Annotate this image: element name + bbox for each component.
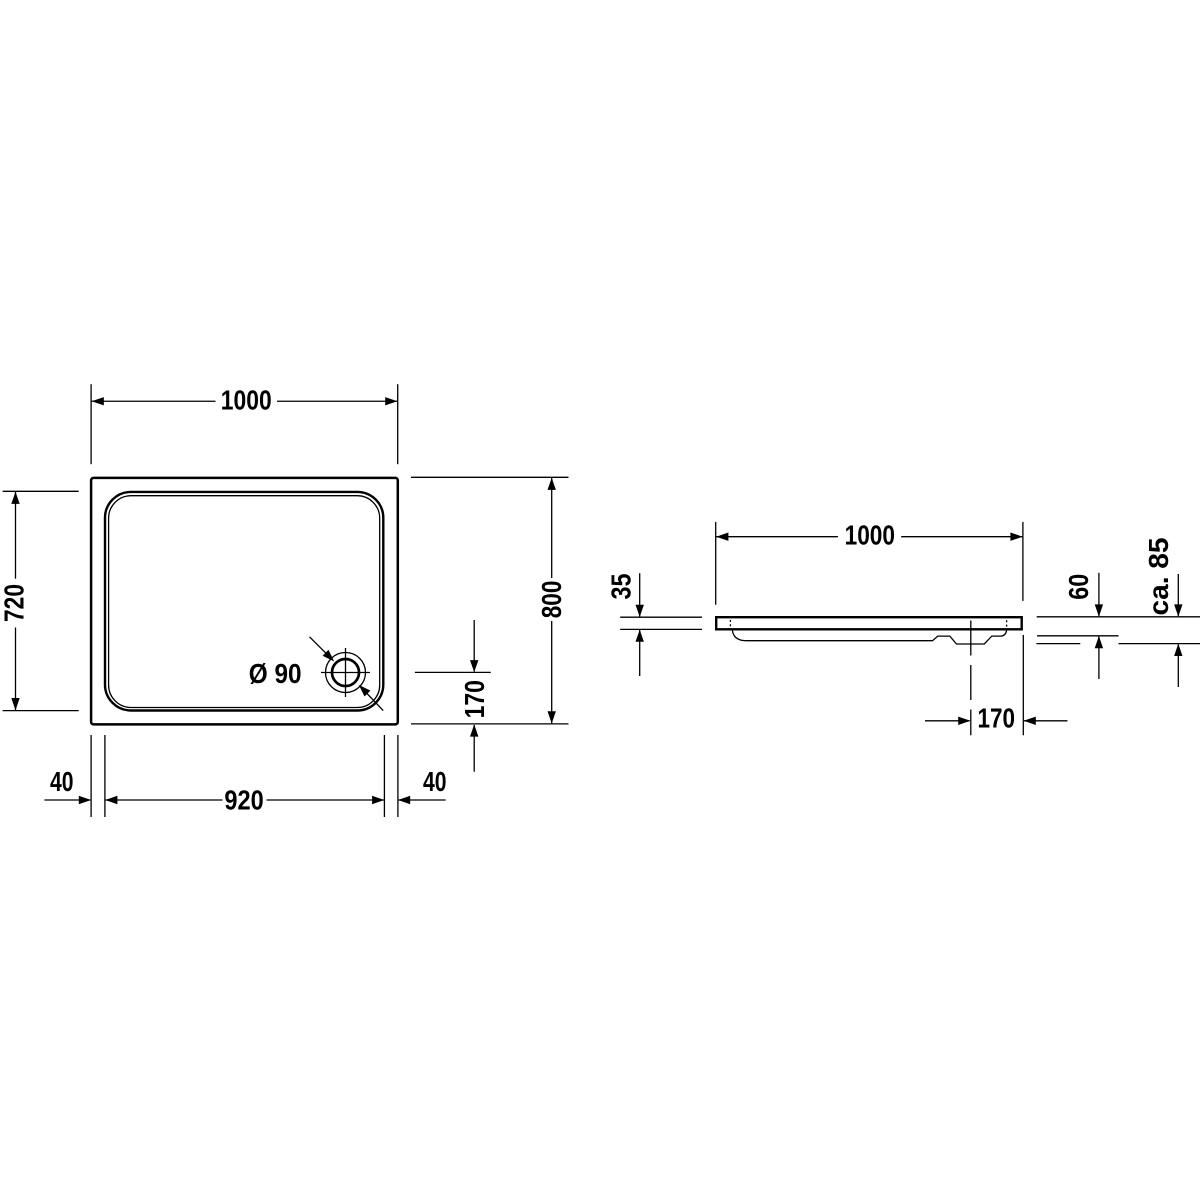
svg-text:800: 800	[536, 581, 567, 619]
svg-text:60: 60	[1063, 574, 1094, 600]
svg-text:920: 920	[224, 785, 263, 816]
svg-text:Ø 90: Ø 90	[249, 658, 302, 689]
svg-text:40: 40	[50, 766, 74, 797]
svg-text:170: 170	[978, 703, 1016, 734]
svg-text:35: 35	[605, 574, 636, 600]
svg-text:1000: 1000	[221, 385, 272, 416]
svg-text:1000: 1000	[845, 520, 895, 551]
svg-text:ca. 85: ca. 85	[1143, 538, 1174, 616]
svg-text:170: 170	[459, 680, 490, 718]
svg-text:720: 720	[0, 584, 30, 622]
svg-text:40: 40	[423, 766, 447, 797]
